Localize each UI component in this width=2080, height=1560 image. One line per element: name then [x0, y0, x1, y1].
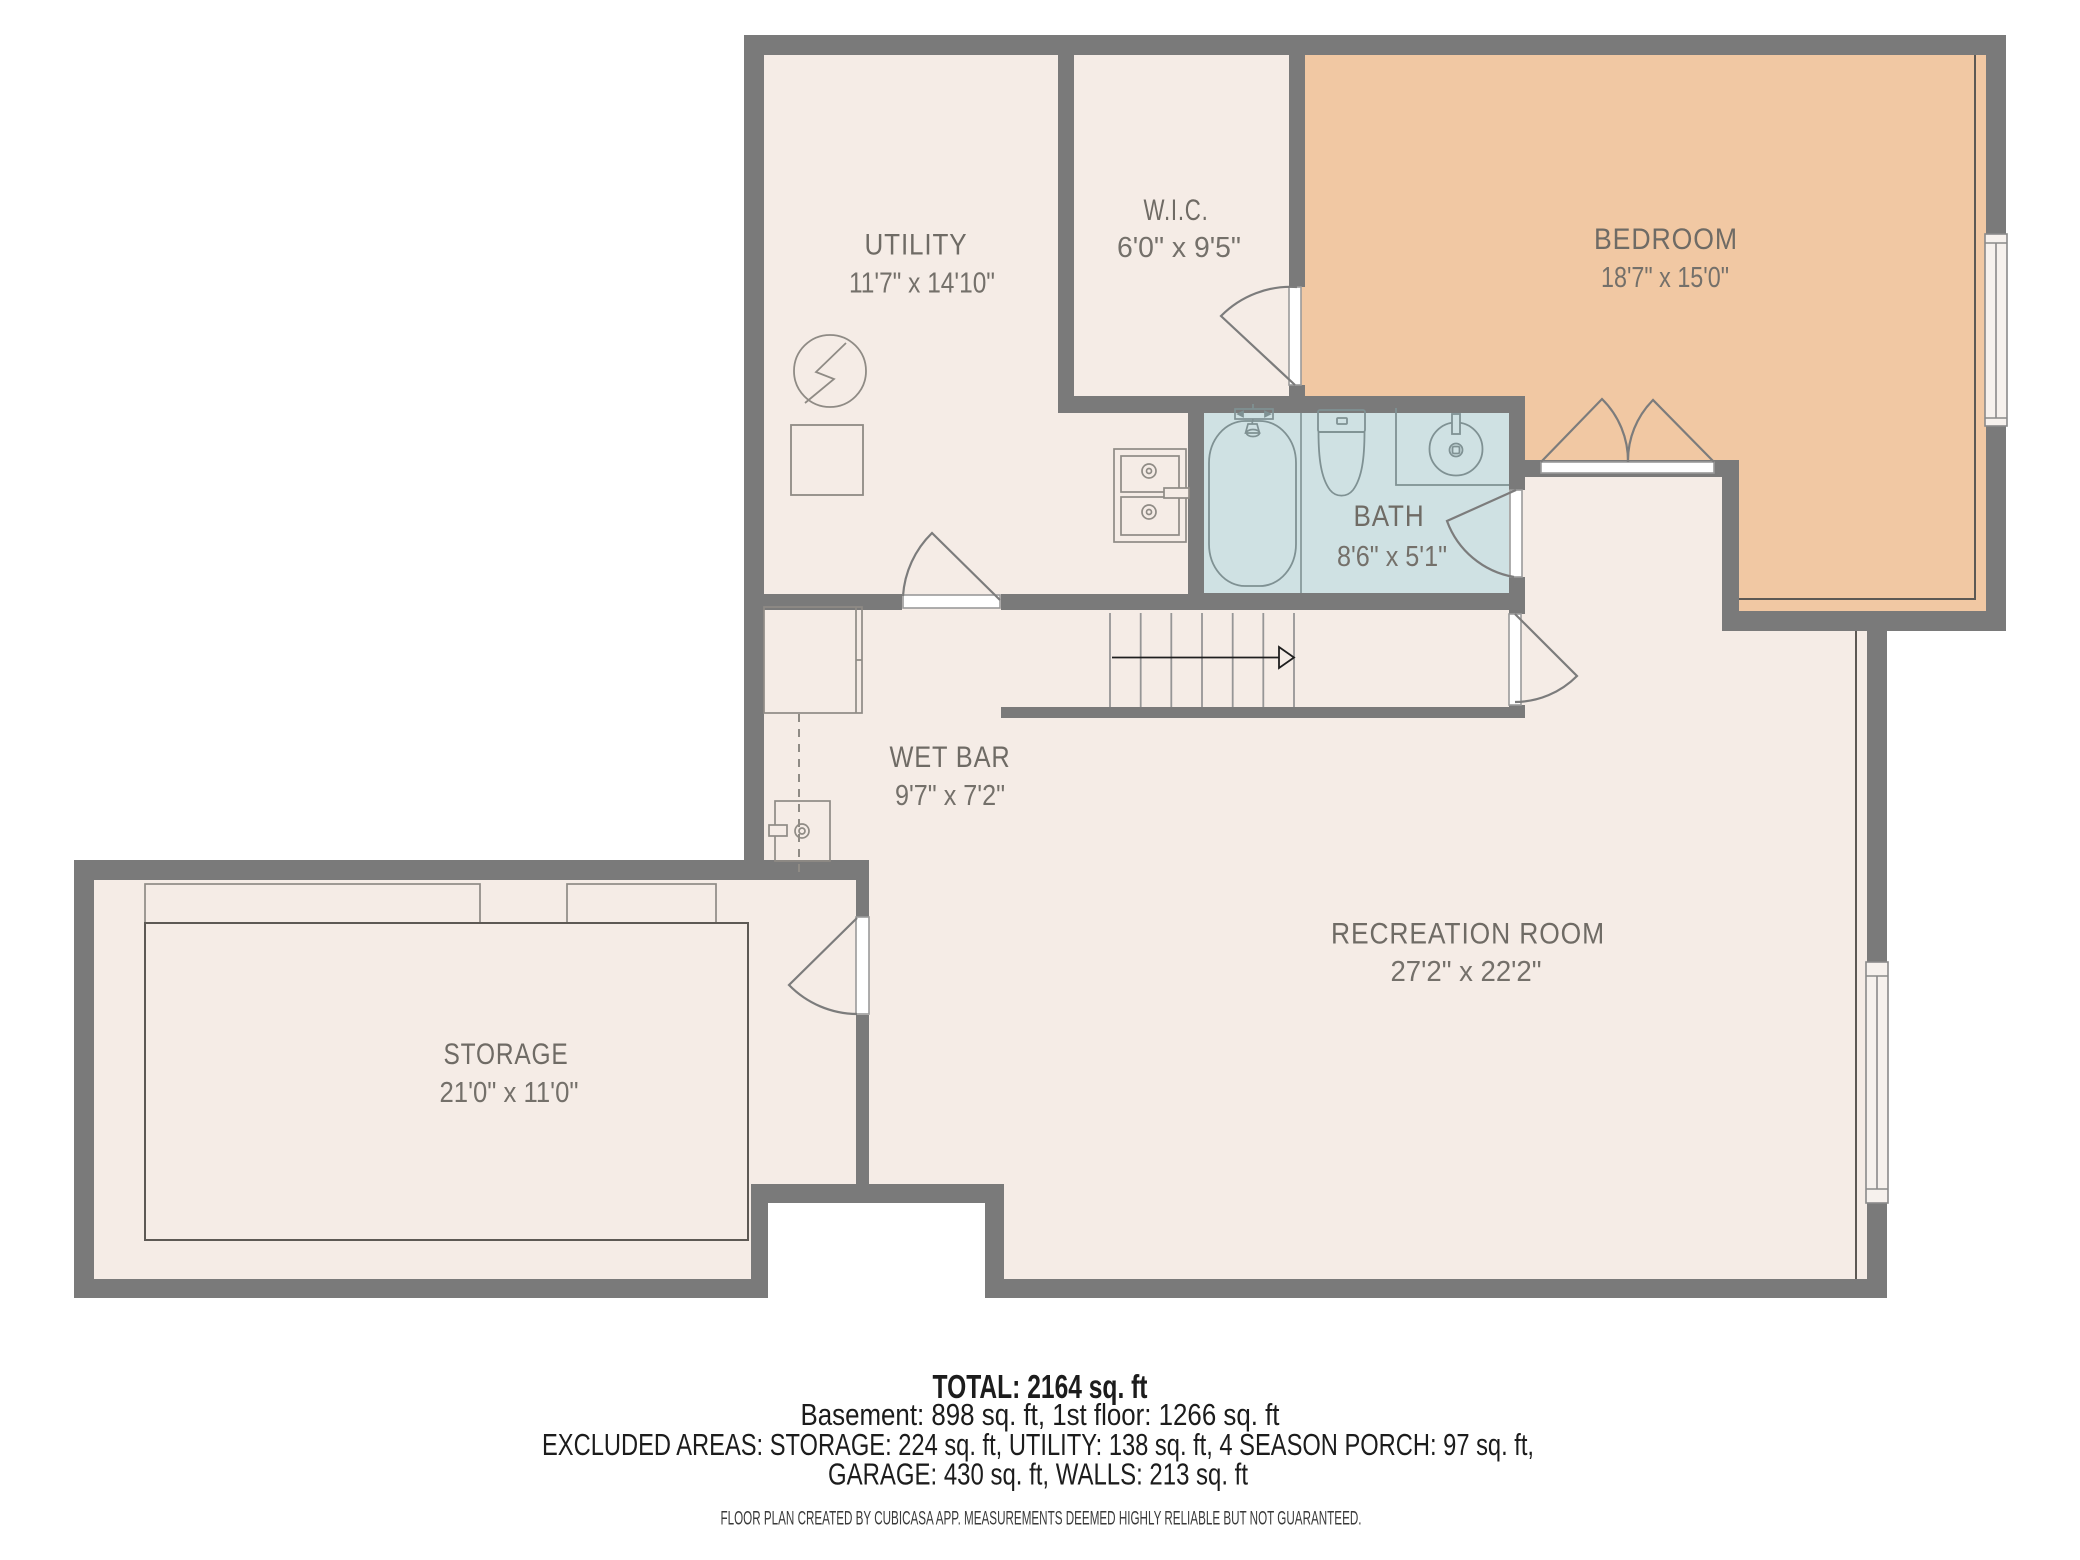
svg-text:BEDROOM: BEDROOM — [1594, 223, 1738, 256]
svg-text:21'0" x 11'0": 21'0" x 11'0" — [440, 1077, 579, 1109]
svg-text:18'7" x 15'0": 18'7" x 15'0" — [1601, 262, 1729, 294]
svg-text:BATH: BATH — [1354, 500, 1425, 533]
svg-text:GARAGE: 430 sq. ft, WALLS: 213: GARAGE: 430 sq. ft, WALLS: 213 sq. ft — [828, 1457, 1248, 1492]
svg-text:RECREATION ROOM: RECREATION ROOM — [1331, 918, 1605, 951]
svg-text:9'7" x 7'2": 9'7" x 7'2" — [895, 780, 1005, 812]
svg-text:6'0" x 9'5": 6'0" x 9'5" — [1117, 232, 1241, 264]
svg-text:FLOOR PLAN CREATED BY CUBICASA: FLOOR PLAN CREATED BY CUBICASA APP. MEAS… — [721, 1509, 1362, 1530]
svg-text:27'2" x 22'2": 27'2" x 22'2" — [1391, 956, 1542, 988]
svg-text:WET BAR: WET BAR — [890, 741, 1011, 774]
svg-text:11'7" x 14'10": 11'7" x 14'10" — [849, 268, 995, 300]
svg-text:8'6" x 5'1": 8'6" x 5'1" — [1337, 541, 1447, 573]
svg-text:STORAGE: STORAGE — [444, 1038, 569, 1071]
svg-text:W.I.C.: W.I.C. — [1144, 194, 1209, 227]
svg-text:UTILITY: UTILITY — [865, 229, 968, 262]
